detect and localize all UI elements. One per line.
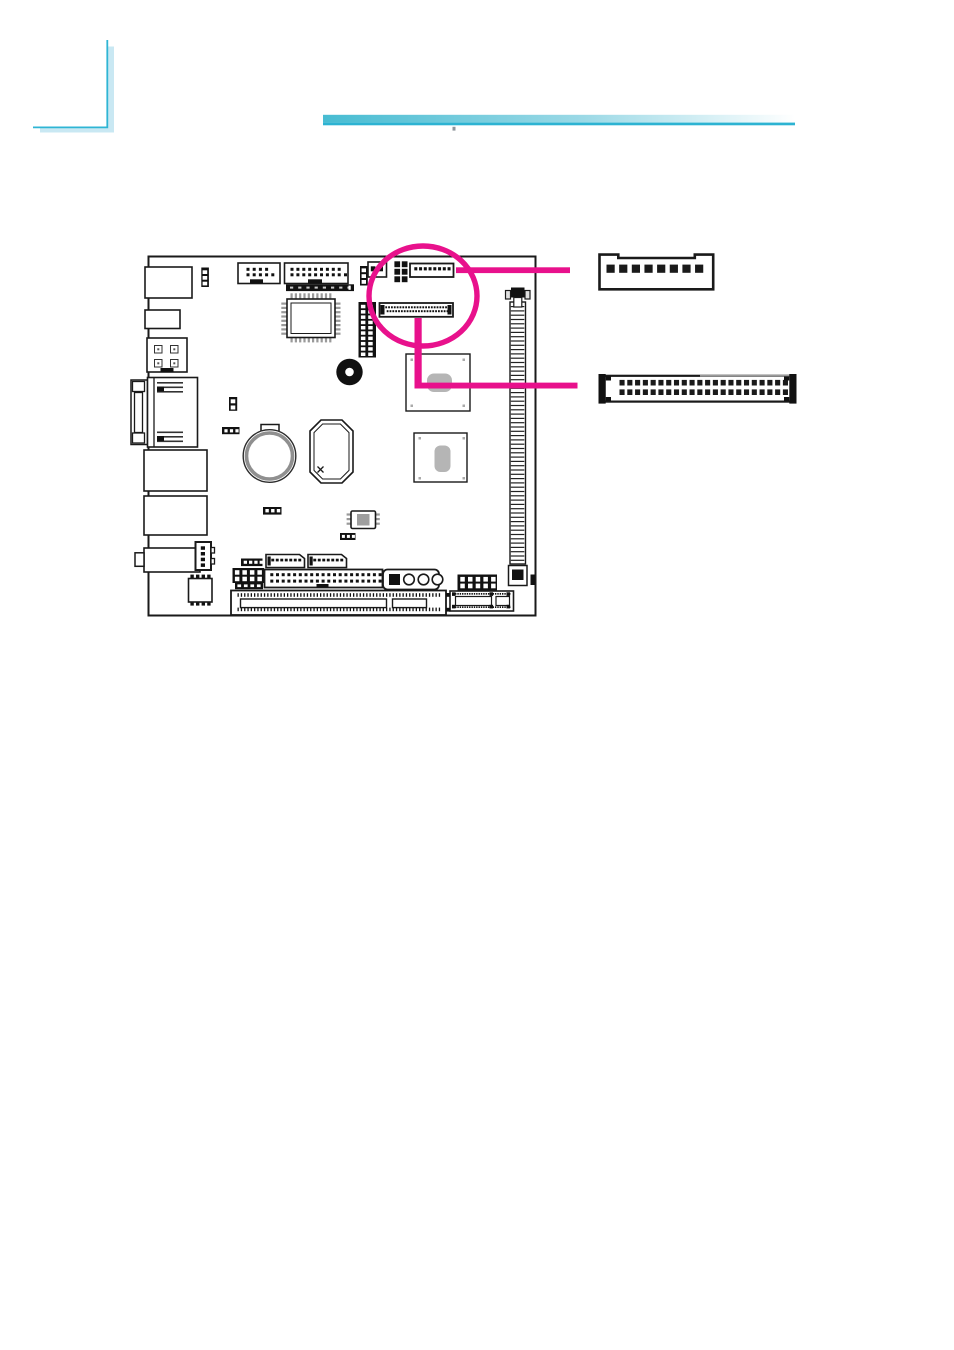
- pin-header-2x5: [458, 575, 498, 592]
- pin: [500, 606, 501, 608]
- pin: [666, 389, 671, 395]
- pin: [343, 593, 344, 597]
- pci-slot: [231, 591, 451, 616]
- pin: [511, 517, 525, 518]
- pin: [291, 268, 294, 271]
- pin: [173, 362, 175, 364]
- pin: [276, 580, 279, 583]
- pin: [298, 559, 301, 562]
- pin: [325, 293, 327, 298]
- pin: [643, 380, 648, 386]
- pin: [335, 307, 340, 309]
- pin: [259, 268, 262, 271]
- manual-page: [0, 0, 954, 1350]
- pin: [437, 306, 439, 308]
- pin: [728, 389, 733, 395]
- pin: [433, 267, 436, 270]
- pin: [322, 580, 325, 583]
- pin-bar-4b: [235, 583, 263, 589]
- pin: [697, 380, 702, 386]
- pin: [367, 580, 370, 583]
- pin: [429, 608, 430, 612]
- pin: [313, 559, 316, 562]
- pin: [471, 593, 472, 595]
- jumper-3pin-mid: [360, 266, 368, 286]
- header2-extra-pin: [344, 273, 347, 276]
- pin: [368, 321, 373, 325]
- pin: [429, 267, 432, 270]
- pin: [476, 606, 477, 608]
- pin: [203, 276, 208, 280]
- pin: [346, 593, 347, 597]
- pin: [783, 389, 788, 395]
- pin: [344, 573, 347, 576]
- pin: [368, 353, 373, 357]
- pin: [736, 389, 741, 395]
- pin: [356, 573, 359, 576]
- pin: [504, 606, 505, 608]
- pin: [467, 606, 468, 608]
- pin: [511, 323, 525, 324]
- pin: [511, 551, 525, 552]
- pin: [271, 593, 272, 597]
- pin: [511, 457, 525, 458]
- pin: [361, 321, 366, 325]
- pin: [463, 359, 466, 362]
- pin: [511, 452, 525, 453]
- pin: [308, 268, 311, 271]
- jumper-pins: [342, 535, 355, 538]
- pin: [389, 608, 390, 612]
- pin: [396, 593, 397, 597]
- pin: [335, 311, 340, 313]
- pin: [651, 380, 656, 386]
- audio-port-block: [135, 548, 200, 572]
- pin: [293, 580, 296, 583]
- com-port-header-1: [266, 555, 305, 568]
- pin: [690, 389, 695, 395]
- pin: [326, 268, 329, 271]
- pin: [347, 535, 350, 538]
- pin: [242, 570, 247, 575]
- pin: [238, 593, 239, 597]
- pin: [280, 559, 283, 562]
- pin: [321, 293, 323, 298]
- pin: [511, 392, 525, 393]
- pin: [511, 371, 525, 372]
- pin: [257, 577, 262, 582]
- pin: [335, 320, 340, 322]
- pin: [620, 389, 625, 395]
- pin: [323, 287, 326, 289]
- connector-44pin-body: [605, 376, 795, 402]
- pin: [302, 273, 305, 276]
- pin: [294, 593, 295, 597]
- pin: [327, 580, 330, 583]
- pin: [329, 293, 331, 298]
- pin: [483, 593, 484, 595]
- pin: [432, 593, 433, 597]
- pin: [511, 534, 525, 535]
- pin: [282, 580, 285, 583]
- flat-cable-footprint: [286, 284, 354, 291]
- pin: [291, 293, 293, 298]
- pin: [201, 552, 205, 556]
- pin: [298, 287, 301, 289]
- pin: [360, 593, 361, 597]
- pin: [460, 584, 465, 589]
- pin: [697, 389, 702, 395]
- pin: [333, 573, 336, 576]
- pin: [409, 593, 410, 597]
- pin: [361, 337, 366, 341]
- header-rule: [323, 115, 795, 125]
- pin: [682, 389, 687, 395]
- pin: [340, 559, 343, 562]
- pin: [331, 287, 334, 289]
- pin: [242, 577, 247, 582]
- pin: [347, 518, 351, 520]
- pin: [299, 580, 302, 583]
- pin: [504, 593, 505, 595]
- pin: [277, 509, 280, 512]
- pin: [224, 429, 227, 432]
- pin: [308, 293, 310, 298]
- pin: [658, 389, 663, 395]
- pin: [201, 563, 205, 567]
- mini-card-connector: [450, 591, 514, 611]
- pin: [414, 306, 416, 308]
- pin: [643, 389, 648, 395]
- pin: [511, 435, 525, 436]
- pin: [511, 482, 525, 483]
- pin: [511, 366, 525, 367]
- pin: [376, 593, 377, 597]
- pin: [627, 380, 632, 386]
- pin: [436, 608, 437, 612]
- pin: [483, 584, 488, 589]
- pin: [261, 593, 262, 597]
- pin: [395, 310, 397, 312]
- pin: [291, 273, 294, 276]
- pin: [511, 547, 525, 548]
- pin: [290, 593, 291, 597]
- pin-bar-4a: [241, 559, 263, 567]
- pin: [306, 287, 309, 289]
- pin: [331, 559, 334, 562]
- io-port-block: [145, 267, 192, 298]
- pin: [368, 326, 373, 330]
- pin: [425, 306, 427, 308]
- pin: [230, 429, 233, 432]
- jumper-pins: [203, 270, 208, 285]
- pin: [439, 306, 441, 308]
- pin: [303, 293, 305, 298]
- pin: [474, 606, 475, 608]
- pin: [419, 593, 420, 597]
- pin: [483, 606, 484, 608]
- pin: [362, 274, 366, 278]
- pin: [361, 326, 366, 330]
- ide-connector: [265, 570, 383, 588]
- pin: [410, 310, 412, 312]
- pin: [402, 306, 404, 308]
- fan-connector: [196, 542, 215, 570]
- pin: [313, 593, 314, 597]
- pin: [173, 348, 175, 350]
- pin: [432, 608, 433, 612]
- pin: [511, 414, 525, 415]
- pin: [270, 580, 273, 583]
- pin: [294, 559, 297, 562]
- pin: [368, 337, 373, 341]
- usb-port-block: [144, 496, 207, 535]
- cpu-socket: [310, 420, 353, 483]
- pin: [502, 593, 503, 595]
- pin: [327, 559, 330, 562]
- pin: [445, 306, 447, 308]
- pin: [310, 593, 311, 597]
- pin: [511, 444, 525, 445]
- pin: [511, 328, 525, 329]
- pin: [379, 593, 380, 597]
- pin: [361, 305, 366, 309]
- pin: [314, 273, 317, 276]
- pin: [398, 310, 400, 312]
- pin: [752, 380, 757, 386]
- pin: [744, 380, 749, 386]
- pin: [620, 380, 625, 386]
- pin: [767, 389, 772, 395]
- connector-illustration-8pin: [600, 255, 714, 290]
- pin: [476, 577, 481, 582]
- pin: [322, 573, 325, 576]
- pin: [257, 584, 261, 587]
- pin: [783, 380, 788, 386]
- pin: [299, 293, 301, 298]
- pin: [383, 593, 384, 597]
- pin: [411, 306, 413, 308]
- crystal-oscillator: [347, 511, 380, 529]
- pin: [511, 336, 525, 337]
- pin: [270, 573, 273, 576]
- pin: [486, 593, 487, 595]
- pin: [420, 306, 422, 308]
- pin: [464, 593, 465, 595]
- chipset-south: [414, 433, 467, 482]
- pin: [241, 593, 242, 597]
- pin: [264, 593, 265, 597]
- pin: [511, 555, 525, 556]
- pin: [387, 310, 389, 312]
- pin: [431, 306, 433, 308]
- pin: [439, 593, 440, 597]
- pin: [281, 311, 286, 313]
- pin: [419, 477, 422, 480]
- pin: [356, 593, 357, 597]
- pin: [427, 310, 429, 312]
- pin: [244, 584, 248, 587]
- pin: [367, 573, 370, 576]
- pin: [254, 561, 257, 564]
- pin: [237, 584, 241, 587]
- pin: [511, 543, 525, 544]
- pin: [400, 306, 402, 308]
- pin: [511, 426, 525, 427]
- pin: [394, 276, 400, 282]
- pin: [495, 593, 496, 595]
- pin: [462, 606, 463, 608]
- usb-top-port: [145, 310, 180, 329]
- pin: [411, 359, 414, 362]
- pin: [361, 347, 366, 351]
- pin: [511, 315, 525, 316]
- pin: [265, 509, 268, 512]
- pin: [481, 606, 482, 608]
- pin: [511, 560, 525, 561]
- pin: [282, 573, 285, 576]
- pin: [486, 606, 487, 608]
- pin: [231, 406, 236, 410]
- pin: [307, 593, 308, 597]
- pin: [644, 265, 652, 273]
- pin: [276, 573, 279, 576]
- pin: [690, 380, 695, 386]
- pin: [330, 593, 331, 597]
- pin: [441, 310, 443, 312]
- pin: [500, 593, 501, 595]
- highlighted-8pin-connector: [410, 264, 454, 278]
- pin: [627, 389, 632, 395]
- pin: [363, 593, 364, 597]
- pin: [327, 573, 330, 576]
- pin: [406, 593, 407, 597]
- pin: [479, 606, 480, 608]
- pin: [635, 380, 640, 386]
- pin: [511, 396, 525, 397]
- pin: [502, 606, 503, 608]
- pin: [412, 310, 414, 312]
- pin: [411, 405, 414, 408]
- pin: [752, 389, 757, 395]
- pin: [336, 559, 339, 562]
- pin: [335, 315, 340, 317]
- pin: [408, 306, 410, 308]
- pin: [333, 580, 336, 583]
- pin: [284, 593, 285, 597]
- pin: [342, 535, 345, 538]
- pin: [471, 606, 472, 608]
- pin: [511, 431, 525, 432]
- pin: [402, 269, 408, 275]
- pin: [361, 342, 366, 346]
- pin: [335, 328, 340, 330]
- pin: [390, 310, 392, 312]
- pin: [276, 559, 279, 562]
- pin: [267, 593, 268, 597]
- pin: [350, 573, 353, 576]
- pin: [302, 268, 305, 271]
- pin: [511, 422, 525, 423]
- pin: [361, 331, 366, 335]
- pin: [511, 358, 525, 359]
- pin: [265, 268, 268, 271]
- pin: [157, 432, 183, 434]
- pin: [483, 577, 488, 582]
- pin: [344, 580, 347, 583]
- pin-header-2x4: [233, 568, 265, 583]
- pin: [305, 580, 308, 583]
- pin: [511, 508, 525, 509]
- pin: [287, 593, 288, 597]
- pin: [511, 530, 525, 531]
- pin: [447, 310, 449, 312]
- pin: [728, 380, 733, 386]
- pin: [705, 389, 710, 395]
- pin: [402, 261, 408, 267]
- pin: [422, 306, 424, 308]
- pin: [419, 267, 422, 270]
- pin: [323, 593, 324, 597]
- pin: [304, 593, 305, 597]
- pin: [386, 593, 387, 597]
- pin: [388, 306, 390, 308]
- pin: [488, 593, 489, 595]
- pin: [300, 593, 301, 597]
- pin: [391, 306, 393, 308]
- pin: [511, 340, 525, 341]
- pin: [424, 310, 426, 312]
- pin: [511, 332, 525, 333]
- pin: [293, 573, 296, 576]
- pin: [337, 593, 338, 597]
- pin: [460, 593, 461, 595]
- pin: [760, 389, 765, 395]
- multi-pin-header: [285, 263, 349, 284]
- pin: [721, 389, 726, 395]
- pin: [511, 418, 525, 419]
- pin: [335, 333, 340, 335]
- pin: [511, 512, 525, 513]
- pin: [713, 389, 718, 395]
- pin: [326, 273, 329, 276]
- pin: [320, 593, 321, 597]
- pin: [281, 324, 286, 326]
- pin: [249, 561, 252, 564]
- pin: [340, 593, 341, 597]
- pin: [250, 584, 254, 587]
- pin: [361, 315, 366, 319]
- pin: [428, 306, 430, 308]
- pin: [314, 268, 317, 271]
- pin: [317, 593, 318, 597]
- pin: [320, 273, 323, 276]
- pin: [338, 273, 341, 276]
- pin: [442, 306, 444, 308]
- jumper-3pin-top: [201, 268, 209, 288]
- pin: [511, 401, 525, 402]
- callout-line-top: [456, 267, 570, 273]
- pin: [419, 437, 422, 440]
- qfp-chip: [281, 293, 340, 342]
- pin: [439, 608, 440, 612]
- pin: [316, 293, 318, 298]
- pin: [277, 593, 278, 597]
- pin: [511, 487, 525, 488]
- pin: [511, 474, 525, 475]
- pin: [201, 558, 205, 562]
- pin: [468, 577, 473, 582]
